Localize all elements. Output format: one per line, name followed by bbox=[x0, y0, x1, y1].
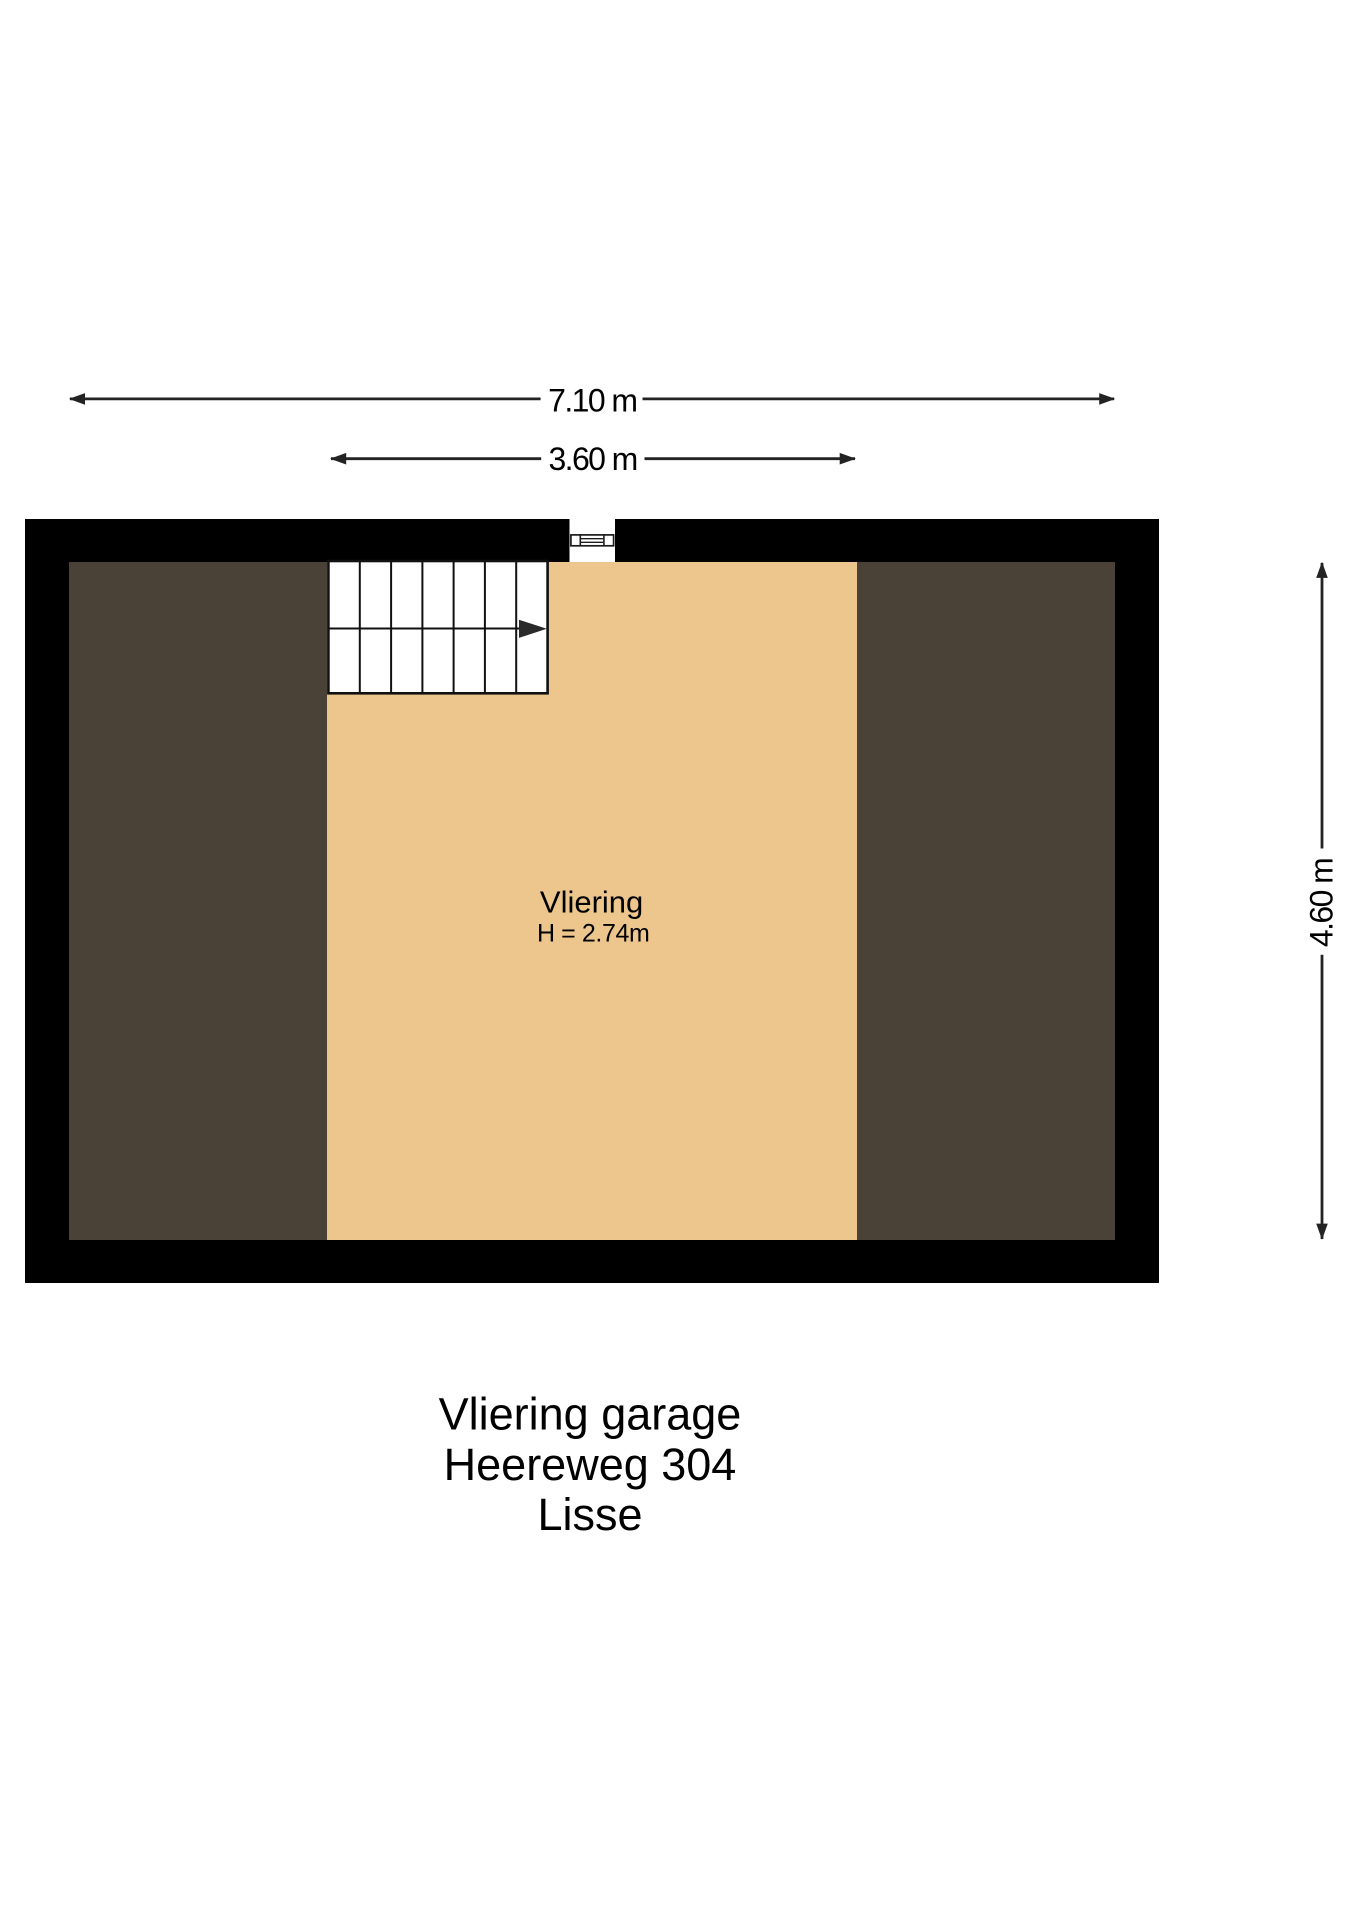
svg-text:Heereweg 304: Heereweg 304 bbox=[444, 1439, 737, 1490]
svg-text:Vliering: Vliering bbox=[540, 884, 643, 919]
svg-text:Vliering garage: Vliering garage bbox=[439, 1388, 742, 1439]
svg-text:4.60 m: 4.60 m bbox=[1304, 859, 1340, 947]
svg-text:3.60 m: 3.60 m bbox=[548, 441, 636, 477]
svg-text:H = 2.74m: H = 2.74m bbox=[537, 920, 649, 948]
svg-text:7.10 m: 7.10 m bbox=[548, 382, 636, 418]
svg-text:Lisse: Lisse bbox=[537, 1489, 642, 1540]
